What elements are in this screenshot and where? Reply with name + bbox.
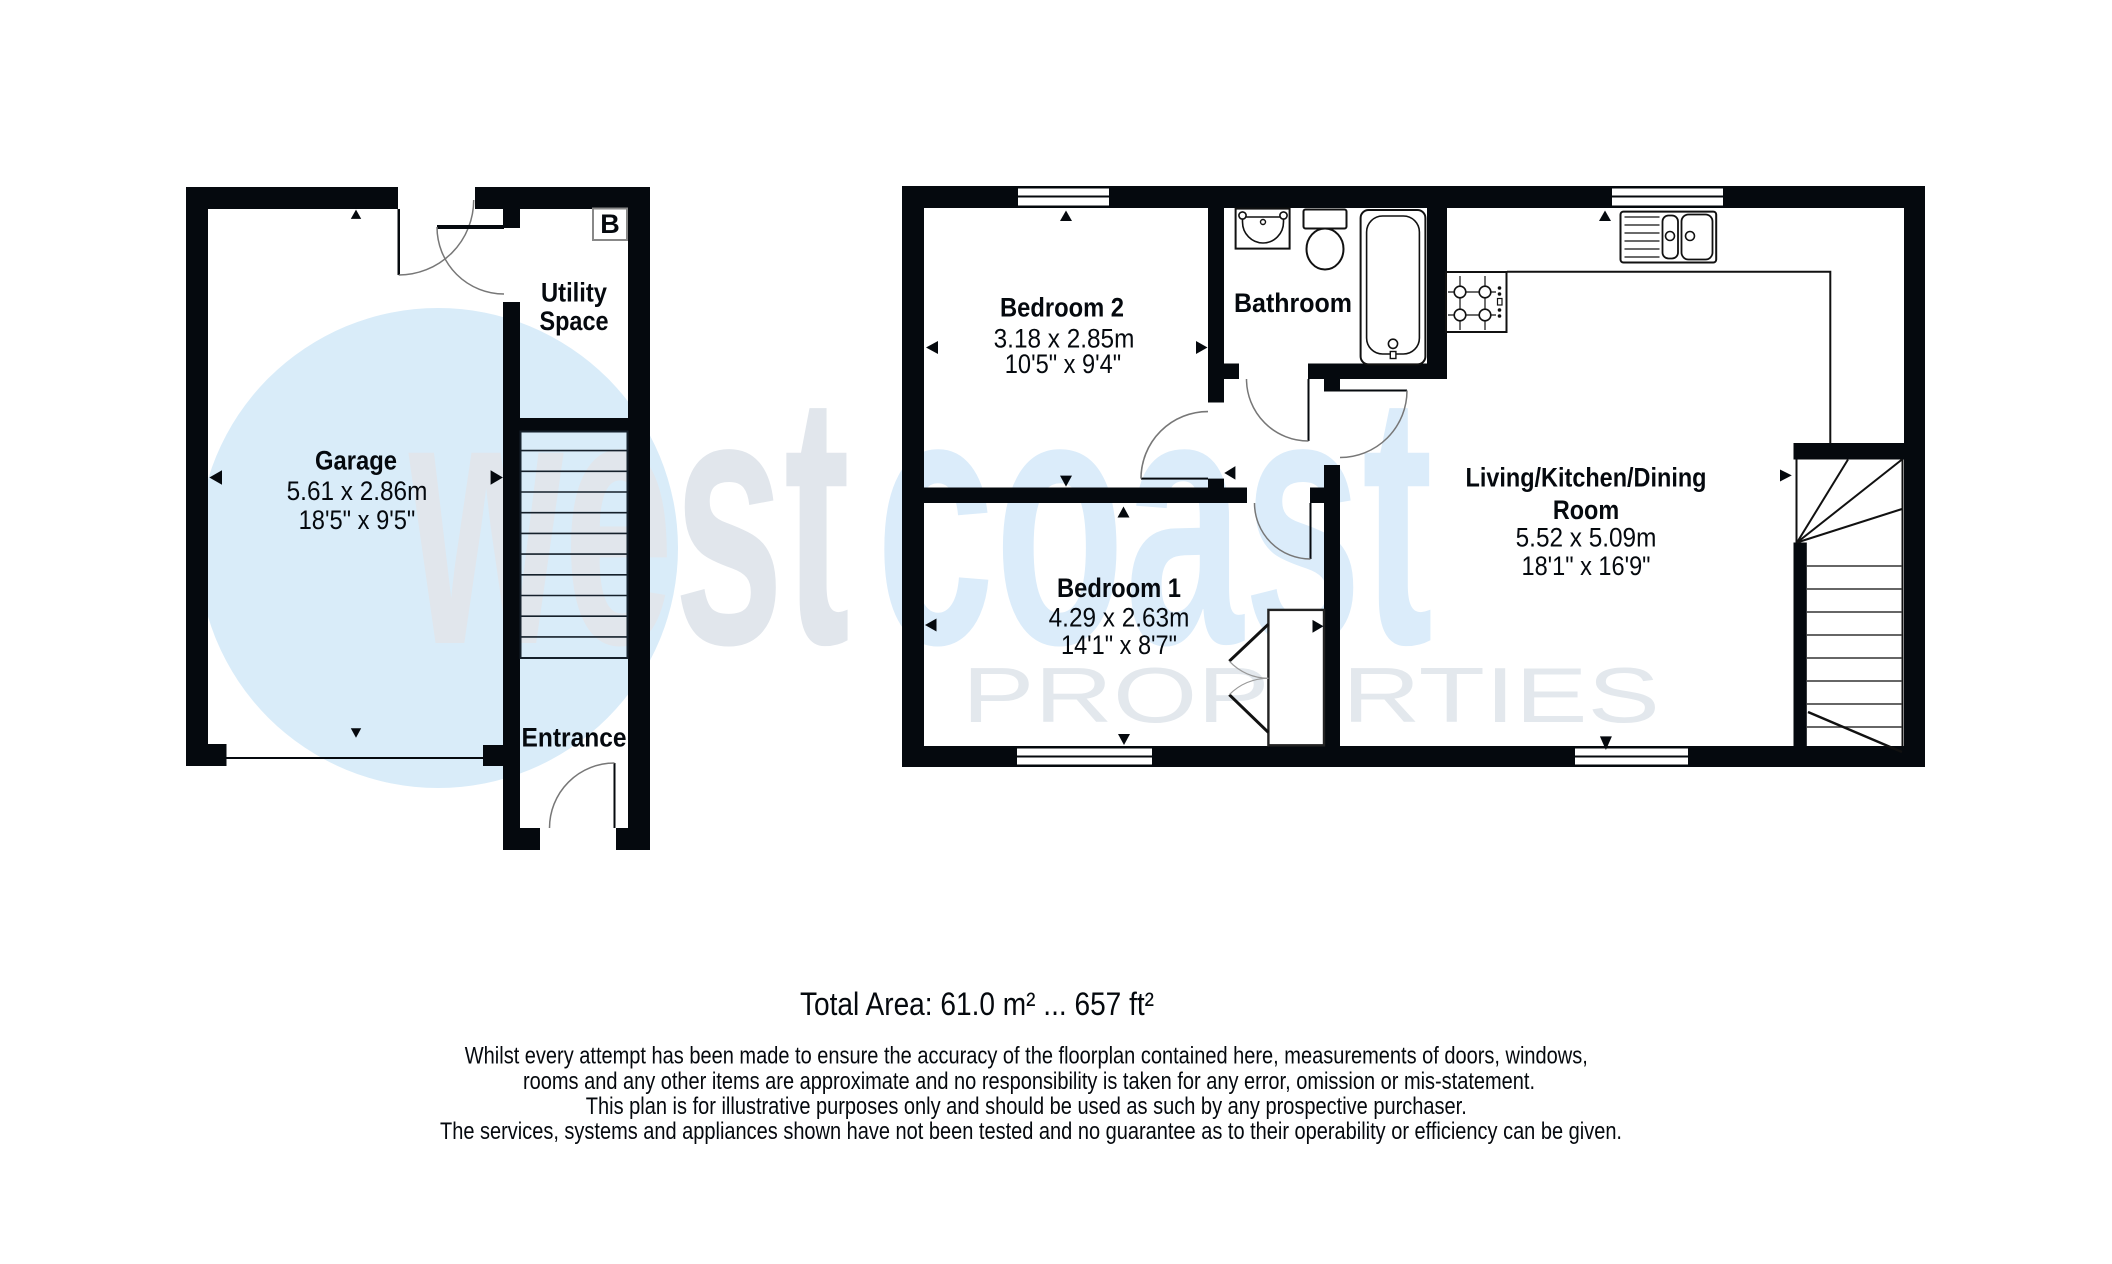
svg-text:Bathroom: Bathroom bbox=[1234, 288, 1352, 318]
svg-text:rooms and any other items are: rooms and any other items are approximat… bbox=[523, 1068, 1535, 1095]
svg-text:Room: Room bbox=[1553, 495, 1619, 525]
svg-text:Total Area: 61.0 m² ... 657 ft: Total Area: 61.0 m² ... 657 ft² bbox=[800, 986, 1154, 1022]
svg-text:14'1" x 8'7": 14'1" x 8'7" bbox=[1061, 630, 1177, 660]
svg-text:5.52 x 5.09m: 5.52 x 5.09m bbox=[1516, 523, 1657, 553]
svg-text:This plan is for illustrative: This plan is for illustrative purposes o… bbox=[586, 1093, 1467, 1120]
svg-text:Whilst every attempt has been: Whilst every attempt has been made to en… bbox=[465, 1042, 1588, 1069]
svg-text:Bedroom 2: Bedroom 2 bbox=[1000, 292, 1124, 322]
svg-text:Entrance: Entrance bbox=[522, 723, 627, 753]
svg-text:18'1" x 16'9": 18'1" x 16'9" bbox=[1522, 551, 1651, 581]
svg-text:5.61 x 2.86m: 5.61 x 2.86m bbox=[287, 476, 428, 506]
svg-text:Space: Space bbox=[540, 306, 609, 336]
svg-text:Utility: Utility bbox=[541, 278, 607, 308]
svg-text:10'5" x 9'4": 10'5" x 9'4" bbox=[1005, 349, 1121, 379]
svg-text:Garage: Garage bbox=[315, 446, 397, 476]
svg-text:Bedroom 1: Bedroom 1 bbox=[1057, 573, 1181, 603]
svg-text:4.29 x 2.63m: 4.29 x 2.63m bbox=[1049, 602, 1190, 632]
svg-text:Living/Kitchen/Dining: Living/Kitchen/Dining bbox=[1466, 463, 1707, 493]
svg-text:18'5" x 9'5": 18'5" x 9'5" bbox=[299, 505, 416, 535]
svg-text:The services, systems and appl: The services, systems and appliances sho… bbox=[440, 1118, 1622, 1145]
svg-text:B: B bbox=[600, 209, 620, 239]
